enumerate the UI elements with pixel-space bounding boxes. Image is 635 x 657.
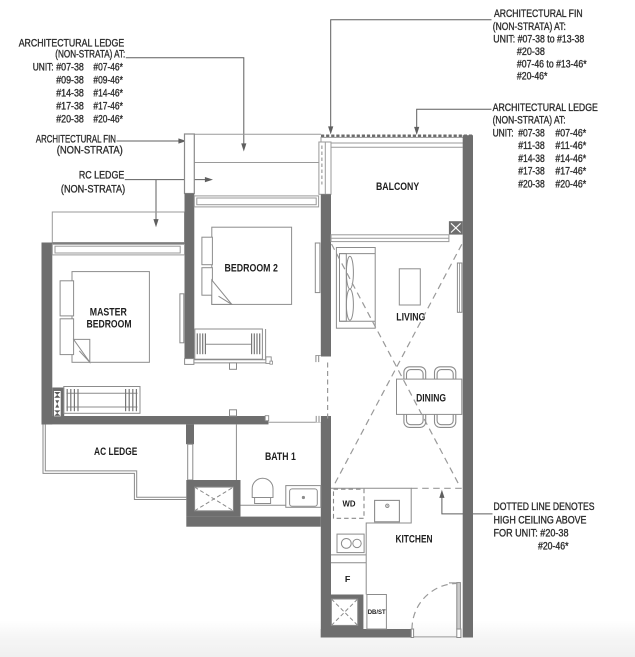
svg-text:BATH 1: BATH 1: [265, 451, 296, 463]
svg-text:UNIT:: UNIT:: [493, 128, 514, 140]
svg-text:HIGH CEILING ABOVE: HIGH CEILING ABOVE: [494, 514, 587, 526]
svg-text:(NON-STRATA) AT:: (NON-STRATA) AT:: [55, 49, 125, 61]
svg-text:#20-38: #20-38: [518, 178, 545, 190]
svg-text:UNIT:: UNIT:: [33, 61, 54, 73]
svg-text:#14-38: #14-38: [56, 87, 84, 99]
svg-text:BEDROOM: BEDROOM: [87, 319, 132, 331]
svg-text:#20-46*: #20-46*: [555, 178, 586, 190]
svg-text:#20-46*: #20-46*: [93, 113, 123, 125]
svg-text:#14-46*: #14-46*: [555, 153, 586, 165]
svg-text:UNIT: #07-38 to #13-38: UNIT: #07-38 to #13-38: [493, 34, 584, 46]
svg-text:MASTER: MASTER: [90, 306, 127, 318]
svg-text:RC LEDGE: RC LEDGE: [79, 170, 124, 182]
svg-text:ARCHITECTURAL LEDGE: ARCHITECTURAL LEDGE: [493, 102, 598, 114]
svg-text:#17-38: #17-38: [56, 100, 84, 112]
svg-text:FOR UNIT: #20-38: FOR UNIT: #20-38: [494, 527, 569, 539]
svg-text:BALCONY: BALCONY: [376, 181, 420, 193]
svg-text:#07-38: #07-38: [56, 61, 84, 73]
svg-text:#11-38: #11-38: [518, 140, 545, 152]
svg-text:#20-46*: #20-46*: [517, 71, 548, 83]
svg-text:KITCHEN: KITCHEN: [395, 533, 432, 545]
svg-text:#20-46*: #20-46*: [538, 540, 569, 552]
svg-text:#17-46*: #17-46*: [555, 166, 586, 178]
svg-text:AC LEDGE: AC LEDGE: [94, 446, 138, 458]
svg-text:DB/ST: DB/ST: [368, 609, 386, 616]
svg-text:#14-46*: #14-46*: [93, 87, 123, 99]
svg-text:(NON-STRATA) AT:: (NON-STRATA) AT:: [493, 21, 566, 33]
svg-text:ARCHITECTURAL FIN: ARCHITECTURAL FIN: [494, 8, 583, 20]
svg-text:DINING: DINING: [416, 393, 446, 405]
svg-text:#07-46*: #07-46*: [93, 61, 123, 73]
svg-text:#14-38: #14-38: [518, 153, 545, 165]
svg-text:#07-46*: #07-46*: [555, 128, 586, 140]
svg-text:(NON-STRATA): (NON-STRATA): [57, 145, 123, 157]
svg-text:#07-46 to #13-46*: #07-46 to #13-46*: [517, 58, 587, 70]
svg-text:#07-38: #07-38: [518, 128, 545, 140]
svg-text:#20-38: #20-38: [56, 113, 84, 125]
svg-text:#17-38: #17-38: [518, 166, 545, 178]
svg-text:#17-46*: #17-46*: [93, 100, 123, 112]
svg-text:ARCHITECTURAL LEDGE: ARCHITECTURAL LEDGE: [19, 37, 125, 49]
svg-text:#09-38: #09-38: [56, 74, 84, 86]
svg-text:#20-38: #20-38: [517, 46, 545, 58]
svg-text:BEDROOM 2: BEDROOM 2: [225, 263, 278, 275]
svg-text:LIVING: LIVING: [396, 311, 425, 323]
svg-text:#11-46*: #11-46*: [555, 140, 586, 152]
svg-text:DOTTED LINE DENOTES: DOTTED LINE DENOTES: [494, 501, 595, 513]
svg-text:WD: WD: [343, 500, 356, 509]
svg-text:(NON-STRATA) AT:: (NON-STRATA) AT:: [493, 114, 566, 126]
svg-text:#09-46*: #09-46*: [93, 74, 123, 86]
svg-text:F: F: [345, 574, 351, 584]
svg-text:(NON-STRATA): (NON-STRATA): [61, 184, 125, 196]
